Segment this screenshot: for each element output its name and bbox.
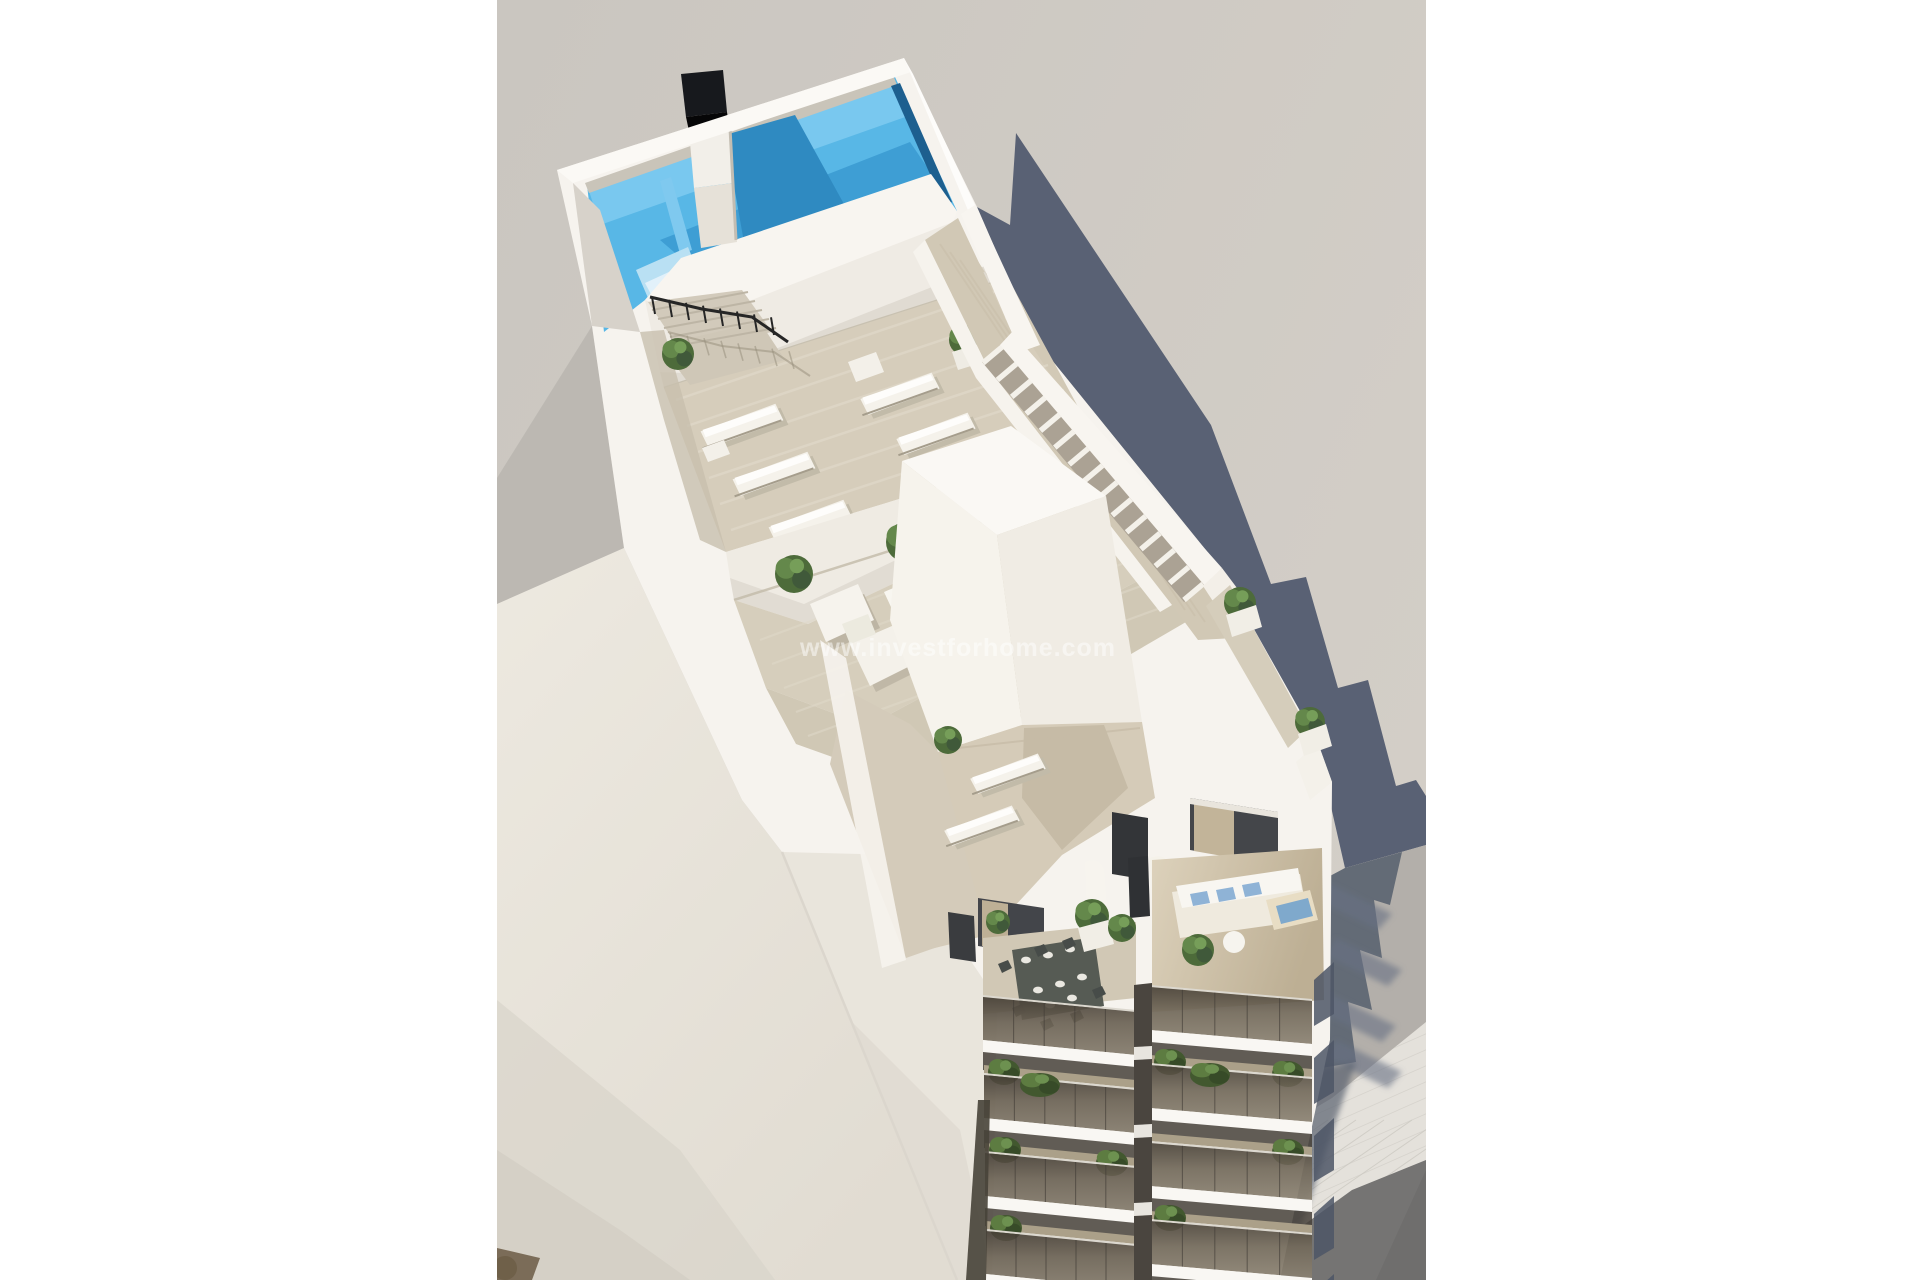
svg-text:www.investforhome.com: www.investforhome.com [799, 634, 1116, 662]
